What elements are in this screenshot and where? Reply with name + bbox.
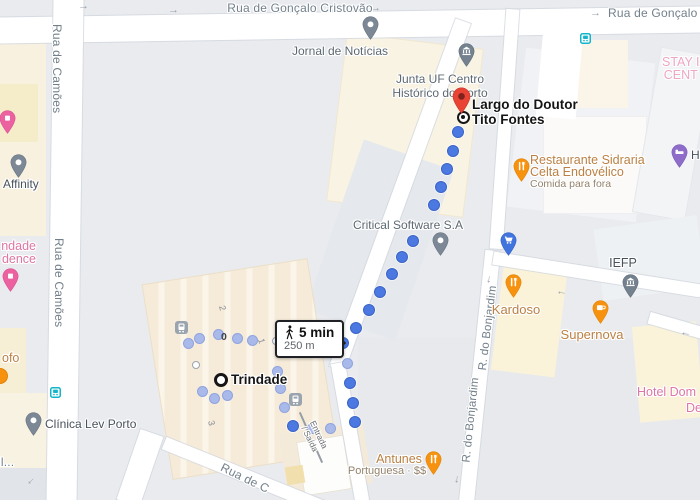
junta-line1: Junta UF Centro (382, 72, 498, 86)
street-label-goncalo-right: Rua de Gonçalo C (608, 6, 700, 20)
residence-line2: dence (0, 253, 36, 266)
street (117, 429, 164, 500)
lodging-pin-icon[interactable] (671, 144, 688, 168)
one-way-arrow-icon: → (679, 328, 692, 341)
one-way-arrow-icon: → (168, 5, 179, 16)
destination-pin-icon[interactable] (452, 87, 471, 114)
route-dot (429, 200, 439, 210)
poi-label-clinica[interactable]: Clínica Lev Porto (45, 418, 136, 432)
street (490, 9, 520, 249)
building (491, 266, 567, 377)
place-pin-icon[interactable] (362, 16, 379, 40)
station-route-dot (326, 424, 335, 433)
route-dot (350, 417, 360, 427)
one-way-arrow-icon: → (78, 1, 89, 12)
route-dot (442, 164, 452, 174)
cafe-pin-icon[interactable] (592, 300, 609, 324)
place-pin-icon[interactable] (25, 412, 42, 436)
station-exit-ring (192, 361, 200, 369)
platform-number-0: 0 (221, 331, 227, 343)
building (285, 465, 306, 486)
station-route-dot (233, 334, 242, 343)
poi-label-antunes[interactable]: Antunes (374, 453, 424, 466)
poi-label-junta[interactable]: Junta UF Centro Histórico do Porto (382, 72, 498, 100)
station-route-dot (184, 339, 193, 348)
map-canvas[interactable]: → → → → → → → → → Rua de Gonçalo Cristov… (0, 0, 700, 500)
route-dot (387, 269, 397, 279)
walking-icon (284, 325, 295, 340)
route-dot (436, 182, 446, 192)
sidraria-line2: Celta Endovélico (530, 167, 645, 179)
institution-pin-icon[interactable] (458, 43, 475, 67)
origin-marker-icon[interactable] (214, 373, 228, 387)
poi-label-hotel-h[interactable]: H (691, 149, 700, 163)
metro-station-icon[interactable] (175, 321, 188, 334)
poi-label-hotel-dom-1[interactable]: Hotel Dom (637, 386, 696, 399)
restaurant-pin-icon[interactable] (505, 274, 522, 298)
one-way-arrow-icon: → (555, 287, 567, 299)
poi-label-il[interactable]: il... (0, 455, 14, 469)
poi-label-jornal[interactable]: Jornal de Notícias (282, 45, 398, 59)
poi-label-hotel-dom-2[interactable]: De (686, 402, 700, 415)
destination-line2: Tito Fontes (472, 112, 578, 127)
place-pin-icon[interactable] (10, 154, 27, 178)
poi-label-stay[interactable]: STAY I CENT (662, 56, 700, 82)
station-route-dot (195, 334, 204, 343)
place-pin-icon[interactable] (432, 232, 449, 256)
poi-label-affinity[interactable]: Affinity (3, 178, 39, 192)
hotel-pin-icon[interactable] (0, 110, 16, 134)
poi-label-supernova[interactable]: Supernova (557, 329, 627, 342)
station-route-dot (223, 391, 232, 400)
route-dot (408, 236, 418, 246)
hotel-pin-icon[interactable] (2, 268, 19, 292)
destination-label[interactable]: Largo do Doutor Tito Fontes (472, 97, 578, 127)
restaurant-pin-icon[interactable] (425, 451, 442, 475)
route-dot (345, 378, 355, 388)
poi-label-residence[interactable]: ndade dence (0, 240, 36, 266)
route-dot (348, 398, 358, 408)
destination-line1: Largo do Doutor (472, 97, 578, 112)
route-dot (288, 421, 298, 431)
transit-stop-icon[interactable] (580, 33, 591, 44)
route-info-callout[interactable]: 5 min 250 m (275, 320, 344, 358)
route-dot (364, 305, 374, 315)
route-distance: 250 m (284, 340, 334, 352)
one-way-arrow-icon: → (451, 473, 463, 485)
route-duration: 5 min (299, 325, 334, 340)
poi-label-kardoso[interactable]: Kardoso (486, 304, 546, 317)
route-dot (453, 127, 463, 137)
route-dot (375, 287, 385, 297)
route-dot (351, 323, 361, 333)
metro-station-icon[interactable] (289, 393, 302, 406)
supermarket-pin-icon[interactable] (500, 232, 517, 256)
poi-label-ofo[interactable]: ofo (2, 352, 19, 365)
stay-line2: CENT (662, 69, 700, 82)
one-way-arrow-icon: → (483, 273, 495, 285)
transit-stop-icon[interactable] (50, 387, 61, 398)
street-label-camoes-top: Rua de Camões (50, 24, 64, 134)
poi-label-antunes-sub: Portuguesa · $$ (347, 465, 427, 477)
poi-label-iefp[interactable]: IEFP (603, 257, 643, 271)
station-route-dot (280, 403, 289, 412)
restaurant-pin-icon[interactable] (513, 158, 530, 182)
station-route-dot (210, 394, 219, 403)
station-route-dot (198, 387, 207, 396)
street-label-goncalo-cristovao: Rua de Gonçalo Cristovão (195, 1, 405, 15)
route-dot (397, 252, 407, 262)
poi-label-critical[interactable]: Critical Software S.A (347, 219, 469, 233)
sidraria-line3: Comida para fora (530, 178, 645, 190)
station-route-dot (343, 359, 352, 368)
route-dot (448, 146, 458, 156)
street-label-camoes-bottom: Rua de Camões (52, 238, 66, 348)
poi-label-sidraria[interactable]: Restaurante Sidraria Celta Endovélico Co… (530, 155, 645, 190)
one-way-arrow-icon: → (590, 8, 601, 19)
institution-pin-icon[interactable] (622, 274, 639, 298)
origin-label[interactable]: Trindade (231, 372, 287, 387)
